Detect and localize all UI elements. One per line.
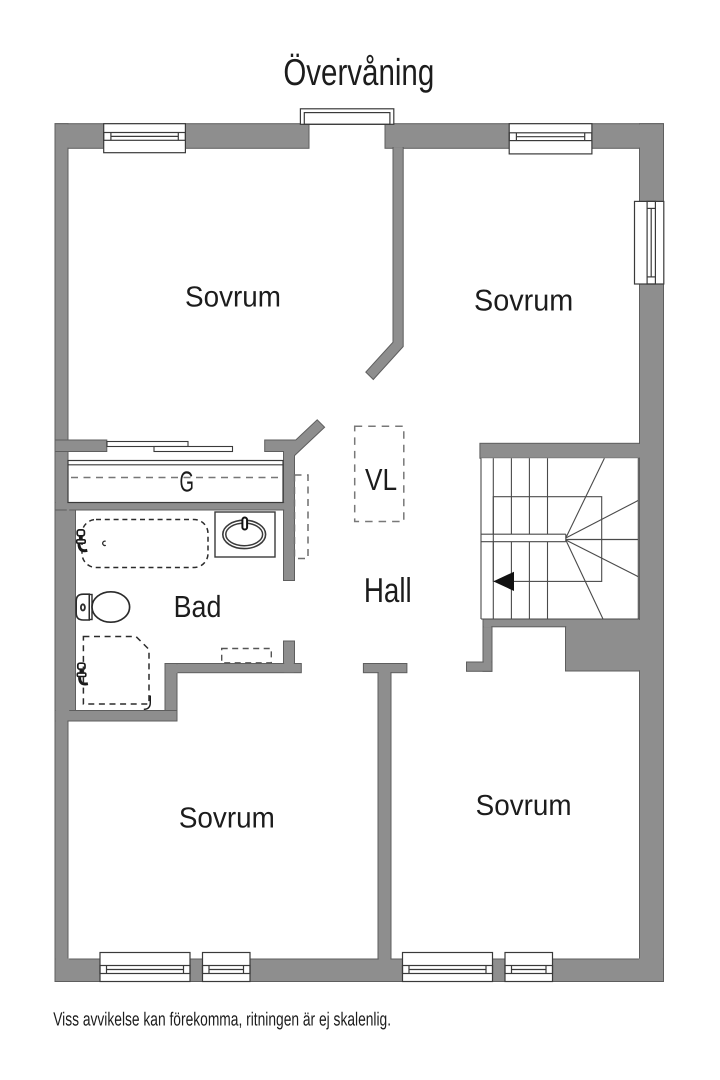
svg-text:Övervåning: Övervåning bbox=[283, 51, 434, 93]
svg-text:Viss avvikelse kan förekomma,: Viss avvikelse kan förekomma, ritningen … bbox=[53, 1009, 391, 1030]
svg-text:Sovrum: Sovrum bbox=[474, 285, 573, 318]
svg-text:Sovrum: Sovrum bbox=[179, 802, 275, 834]
svg-text:Sovrum: Sovrum bbox=[185, 282, 281, 314]
svg-text:Hall: Hall bbox=[364, 572, 412, 610]
svg-text:VL: VL bbox=[365, 463, 397, 497]
svg-text:G: G bbox=[179, 467, 193, 499]
svg-text:Sovrum: Sovrum bbox=[476, 790, 572, 822]
svg-text:Bad: Bad bbox=[174, 590, 222, 624]
